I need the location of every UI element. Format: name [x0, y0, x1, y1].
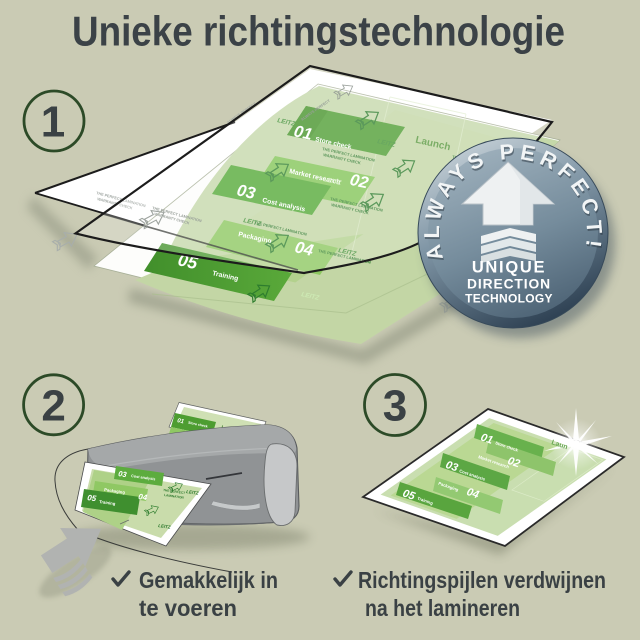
svg-text:Unieke richtingstechnologie: Unieke richtingstechnologie	[72, 8, 565, 55]
svg-text:05: 05	[87, 493, 98, 503]
svg-text:2: 2	[41, 381, 65, 430]
svg-text:UNIQUE: UNIQUE	[472, 259, 546, 277]
svg-text:DIRECTION: DIRECTION	[467, 277, 551, 292]
svg-text:te voeren: te voeren	[139, 595, 237, 621]
svg-text:Richtingspijlen verdwijnen: Richtingspijlen verdwijnen	[358, 567, 606, 593]
svg-text:1: 1	[41, 98, 65, 147]
svg-text:na het lamineren: na het lamineren	[365, 595, 520, 621]
svg-text:TECHNOLOGY: TECHNOLOGY	[465, 292, 553, 306]
svg-text:3: 3	[383, 382, 407, 431]
svg-text:04: 04	[138, 492, 149, 502]
svg-text:Gemakkelijk in: Gemakkelijk in	[139, 567, 278, 593]
